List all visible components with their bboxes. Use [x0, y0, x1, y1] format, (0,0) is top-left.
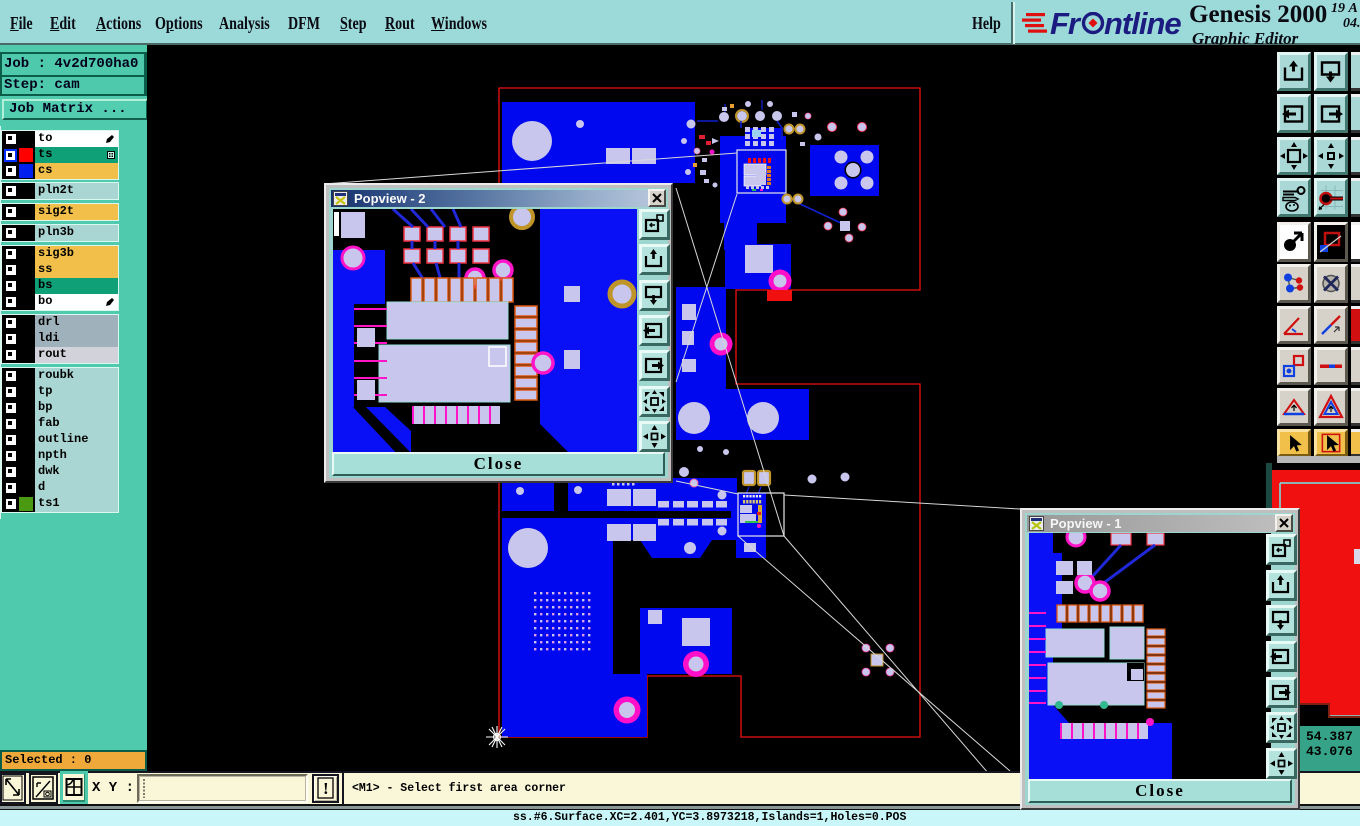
svg-text:!: !: [323, 779, 329, 798]
